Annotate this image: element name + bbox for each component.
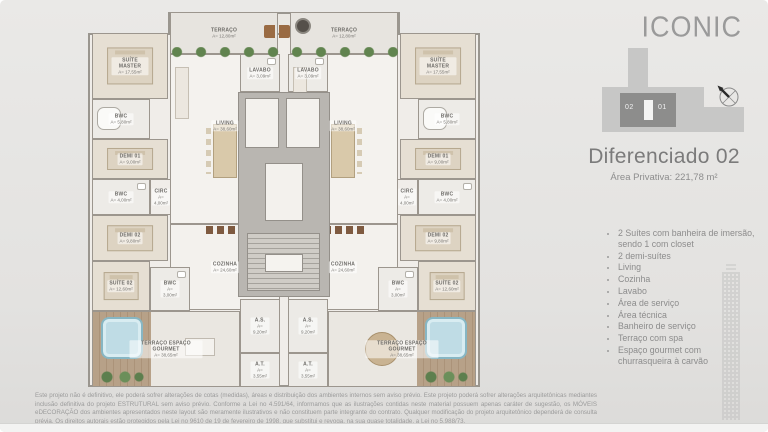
feature-item: 2 Suítes com banheira de imersão, sendo … xyxy=(618,228,756,250)
staircase xyxy=(247,233,320,291)
room-label: BWCA= 4,00m² xyxy=(109,191,134,203)
bed-furniture xyxy=(415,148,461,170)
keyplan-footprint-stub xyxy=(628,48,648,90)
room-label: COZINHAA= 24,60m² xyxy=(329,261,357,273)
elevator-1 xyxy=(245,98,279,148)
floorplan: TERRAÇOA= 12,80m²TERRAÇOA= 12,80m²SUÍTE … xyxy=(88,12,480,389)
room-bwc-demi-dir: BWCA= 4,00m² xyxy=(418,179,476,215)
private-area-label: Área Privativa: 221,78 m² xyxy=(560,172,768,183)
plants-br-furniture xyxy=(423,370,469,383)
room-suite02-esq: SUÍTE 02A= 12,60m² xyxy=(92,261,150,311)
room-gourmet-esq: TERRAÇO ESPAÇO GOURMETA= 38,65m² xyxy=(92,311,240,387)
bed-furniture xyxy=(415,47,461,84)
table-rect-furniture xyxy=(185,338,215,356)
feature-item: 2 demi-suítes xyxy=(618,251,756,262)
room-label: CIRCA= 4,00m² xyxy=(152,189,170,206)
room-bwc-servico-dir: BWCA= 3,00m² xyxy=(378,267,418,311)
room-label: LAVABOA= 3,09m² xyxy=(247,67,273,79)
room-demi01-esq: DEMI 01A= 9,00m² xyxy=(92,139,168,179)
spa-r-furniture xyxy=(425,317,467,359)
spa-l-furniture xyxy=(101,317,143,359)
room-as-dir: A.S.A= 9,20m² xyxy=(288,299,328,353)
room-at-dir: A.T.A= 3,55m² xyxy=(288,353,328,387)
iconic-logo: ICONIC xyxy=(642,11,743,44)
compass-icon xyxy=(716,84,740,108)
room-label: COZINHAA= 24,60m² xyxy=(211,261,239,273)
room-suite-master-dir: SUÍTE MASTERA= 17,55m² xyxy=(400,33,476,99)
room-label: BWCA= 4,00m² xyxy=(435,191,460,203)
room-demi02-dir: DEMI 02A= 9,80m² xyxy=(400,215,476,261)
terrace-round-table xyxy=(295,18,311,34)
sofa-furniture xyxy=(175,67,189,119)
sink-furniture xyxy=(267,58,276,65)
room-as-esq: A.S.A= 9,20m² xyxy=(240,299,280,353)
room-label: TERRAÇOA= 12,80m² xyxy=(329,27,359,39)
elevator-core xyxy=(238,92,330,297)
room-label: TERRAÇOA= 12,80m² xyxy=(209,27,239,39)
dining-furniture xyxy=(213,124,237,178)
room-circ-esq: CIRCA= 4,00m² xyxy=(150,179,172,215)
room-demi02-esq: DEMI 02A= 9,80m² xyxy=(92,215,168,261)
bed-furniture xyxy=(415,225,461,251)
sink-furniture xyxy=(177,271,186,278)
room-gourmet-dir: TERRAÇO ESPAÇO GOURMETA= 38,65m² xyxy=(328,311,476,387)
room-label: A.T.A= 3,55m² xyxy=(299,362,318,379)
room-bwc-demi-esq: BWCA= 4,00m² xyxy=(92,179,150,215)
dining-furniture xyxy=(331,124,355,178)
room-suite02-dir: SUÍTE 02A= 12,60m² xyxy=(418,261,476,311)
planter-strip xyxy=(170,47,398,58)
brochure-slide: TERRAÇOA= 12,80m²TERRAÇOA= 12,80m²SUÍTE … xyxy=(0,0,768,432)
room-label: A.T.A= 3,55m² xyxy=(251,362,270,379)
sink-furniture xyxy=(463,183,472,190)
tower-watermark xyxy=(722,272,740,420)
legal-disclaimer: Este projeto não é definitivo, ele poder… xyxy=(35,392,597,426)
room-bwc-master-dir: BWCA= 5,80m² xyxy=(418,99,476,139)
sink-furniture xyxy=(405,271,414,278)
bed-furniture xyxy=(430,272,465,300)
keyplan: 02 01 xyxy=(560,45,768,145)
info-panel: ICONIC 02 01 Diferenciado 02 Área Privat… xyxy=(560,0,768,432)
page-title: Diferenciado 02 xyxy=(560,145,768,169)
elevator-3 xyxy=(265,163,303,221)
bed-furniture xyxy=(104,272,139,300)
room-at-esq: A.T.A= 3,55m² xyxy=(240,353,280,387)
tub-furniture xyxy=(97,107,121,131)
hanging-chairs xyxy=(264,25,290,38)
bottom-strip xyxy=(0,423,768,432)
room-label: A.S.A= 9,20m² xyxy=(299,318,318,335)
room-suite-master-esq: SUÍTE MASTERA= 17,55m² xyxy=(92,33,168,99)
bed-furniture xyxy=(107,148,153,170)
room-bwc-servico-esq: BWCA= 3,00m² xyxy=(150,267,190,311)
room-bwc-master-esq: BWCA= 5,80m² xyxy=(92,99,150,139)
room-label: CIRCA= 4,00m² xyxy=(398,189,416,206)
keyplan-unit-02-label: 02 xyxy=(625,104,634,111)
keyplan-unit-01-label: 01 xyxy=(658,104,667,111)
room-circ-dir: CIRCA= 4,00m² xyxy=(396,179,418,215)
bed-furniture xyxy=(107,225,153,251)
room-lavabo-esq: LAVABOA= 3,09m² xyxy=(240,54,280,92)
keyplan-core xyxy=(644,100,653,120)
plants-bl-furniture xyxy=(99,370,145,383)
tub-furniture xyxy=(423,107,447,131)
room-label: A.S.A= 9,20m² xyxy=(251,318,270,335)
elevator-2 xyxy=(286,98,320,148)
bed-furniture xyxy=(107,47,153,84)
room-demi01-dir: DEMI 01A= 9,00m² xyxy=(400,139,476,179)
keyplan-footprint-wing xyxy=(702,107,744,132)
room-label: BWCA= 3,00m² xyxy=(161,281,180,298)
room-label: BWCA= 3,00m² xyxy=(389,281,408,298)
sink-furniture xyxy=(137,183,146,190)
table-round-furniture xyxy=(365,332,399,366)
sink-furniture xyxy=(315,58,324,65)
